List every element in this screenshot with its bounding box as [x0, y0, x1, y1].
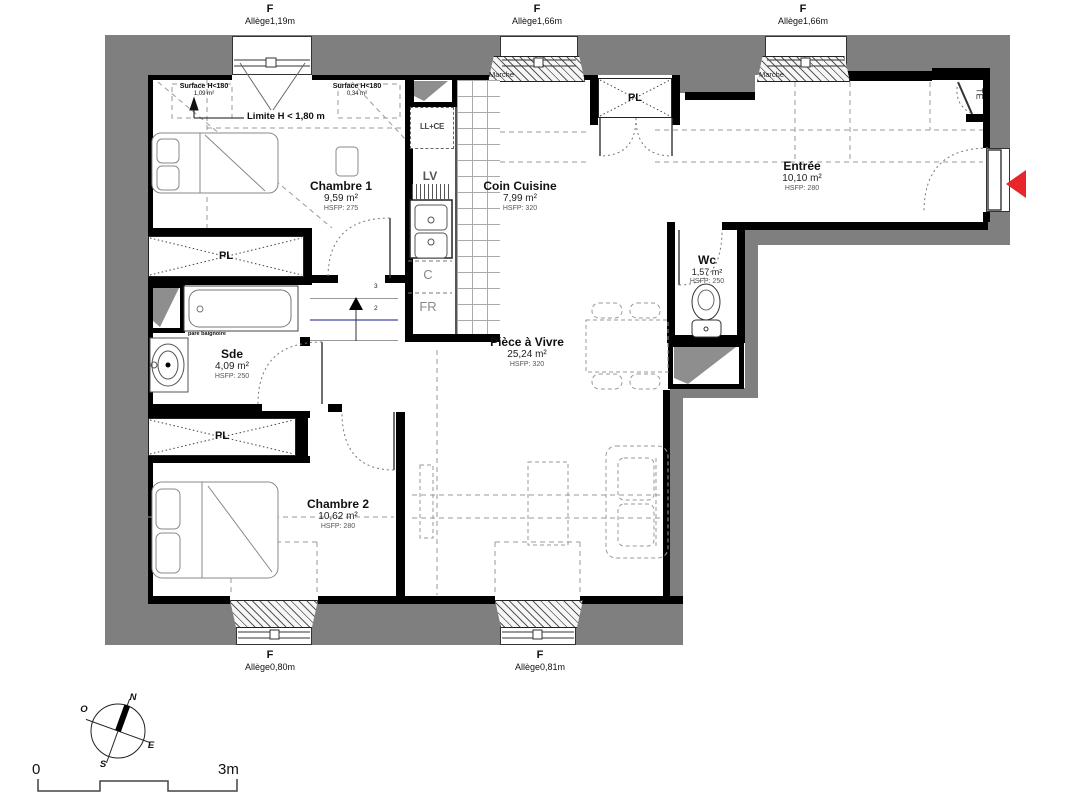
- window-label-top-1: F Allège1,19m: [245, 3, 295, 27]
- room-hsfp: HSFP: 320: [483, 205, 556, 213]
- surface-area: 1,09 m²: [180, 91, 228, 98]
- bath-screen-label: pare baignoire: [188, 331, 226, 337]
- window-allege: Allège1,66m: [512, 16, 562, 27]
- stair-arrow: [349, 297, 363, 341]
- room-label-sde: Sde 4,09 m² HSFP: 250: [215, 347, 249, 381]
- scale-three-m: 3m: [218, 761, 239, 779]
- room-hsfp: HSFP: 250: [690, 278, 724, 286]
- room-area: 1,57 m²: [690, 267, 724, 278]
- room-area: 4,09 m²: [215, 361, 249, 373]
- compass-s: S: [100, 759, 107, 770]
- washer-waterheater-label: LL+CE: [420, 122, 444, 131]
- window-allege: Allège1,66m: [778, 16, 828, 27]
- room-name: Sde: [215, 347, 249, 361]
- room-label-wc: Wc 1,57 m² HSFP: 250: [690, 253, 724, 286]
- stair-number-2: 2: [374, 305, 378, 313]
- window-label-bottom-1: F Allège0,80m: [245, 649, 295, 673]
- room-area: 10,10 m²: [782, 173, 821, 185]
- fridge-label: FR: [419, 299, 436, 314]
- room-label-chambre1: Chambre 1 9,59 m² HSFP: 275: [310, 179, 372, 213]
- step-label-entree: Marche: [759, 71, 784, 80]
- compass-rose: N O E S: [80, 692, 155, 770]
- room-label-chambre2: Chambre 2 10,62 m² HSFP: 280: [307, 497, 369, 531]
- window-code: F: [512, 3, 562, 16]
- washbasin: [150, 338, 188, 392]
- surface-text: Surface H<180: [333, 83, 381, 91]
- room-name: Entrée: [782, 159, 821, 173]
- room-hsfp: HSFP: 280: [307, 523, 369, 531]
- window-code: F: [245, 649, 295, 662]
- room-hsfp: HSFP: 250: [215, 373, 249, 381]
- room-label-entree: Entrée 10,10 m² HSFP: 280: [782, 159, 821, 193]
- limit-leader-arrow: [190, 98, 244, 118]
- room-hsfp: HSFP: 320: [490, 361, 564, 369]
- scale-bar: [38, 779, 237, 791]
- window-code: F: [778, 3, 828, 16]
- door-arcs: [258, 82, 988, 470]
- room-label-coin-cuisine: Coin Cuisine 7,99 m² HSFP: 320: [483, 179, 556, 213]
- closet-label-pl2: PL: [215, 430, 229, 443]
- window-allege: Allège0,81m: [515, 662, 565, 673]
- room-name: Wc: [690, 253, 724, 267]
- closet-label-pl1: PL: [219, 250, 233, 263]
- window-code: F: [515, 649, 565, 662]
- room-name: Chambre 1: [310, 179, 372, 193]
- window-label-top-3: F Allège1,66m: [778, 3, 828, 27]
- fixtures-linework: N O E S: [0, 0, 1084, 800]
- window-label-bottom-2: F Allège0,81m: [515, 649, 565, 673]
- room-area: 10,62 m²: [307, 511, 369, 523]
- surface-annotation-left: Surface H<180 1,09 m²: [180, 83, 228, 98]
- room-label-piece-a-vivre: Pièce à Vivre 25,24 m² HSFP: 320: [490, 335, 564, 369]
- surface-text: Surface H<180: [180, 83, 228, 91]
- te-label: TE: [974, 88, 985, 100]
- height-limit-label: Limite H < 1,80 m: [247, 111, 325, 122]
- window-allege: Allège0,80m: [245, 662, 295, 673]
- toilet: [692, 284, 721, 337]
- window-allege: Allège1,19m: [245, 16, 295, 27]
- room-hsfp: HSFP: 280: [782, 185, 821, 193]
- window-label-top-2: F Allège1,66m: [512, 3, 562, 27]
- stair-number-3: 3: [374, 283, 378, 291]
- room-area: 7,99 m²: [483, 193, 556, 205]
- room-area: 9,59 m²: [310, 193, 372, 205]
- room-name: Coin Cuisine: [483, 179, 556, 193]
- compass-n: N: [130, 692, 138, 703]
- step-label-kitchen: Marche: [489, 71, 514, 80]
- room-area: 25,24 m²: [490, 349, 564, 361]
- room-name: Pièce à Vivre: [490, 335, 564, 349]
- floor-plan: N O E S F Allège1,19m F Allège1,66m F Al…: [0, 0, 1084, 800]
- dishwasher-label: LV: [423, 169, 437, 183]
- closet-label-pl3: PL: [628, 92, 642, 105]
- room-hsfp: HSFP: 275: [310, 205, 372, 213]
- surface-annotation-right: Surface H<180 0,34 m²: [333, 83, 381, 98]
- bathtub: [184, 286, 298, 331]
- surface-area: 0,34 m²: [333, 91, 381, 98]
- compass-o: O: [80, 704, 88, 715]
- room-name: Chambre 2: [307, 497, 369, 511]
- window-code: F: [245, 3, 295, 16]
- cooker-label: C: [423, 267, 432, 282]
- compass-e: E: [148, 740, 155, 751]
- bed-chambre2: [152, 482, 278, 578]
- scale-zero: 0: [32, 761, 40, 779]
